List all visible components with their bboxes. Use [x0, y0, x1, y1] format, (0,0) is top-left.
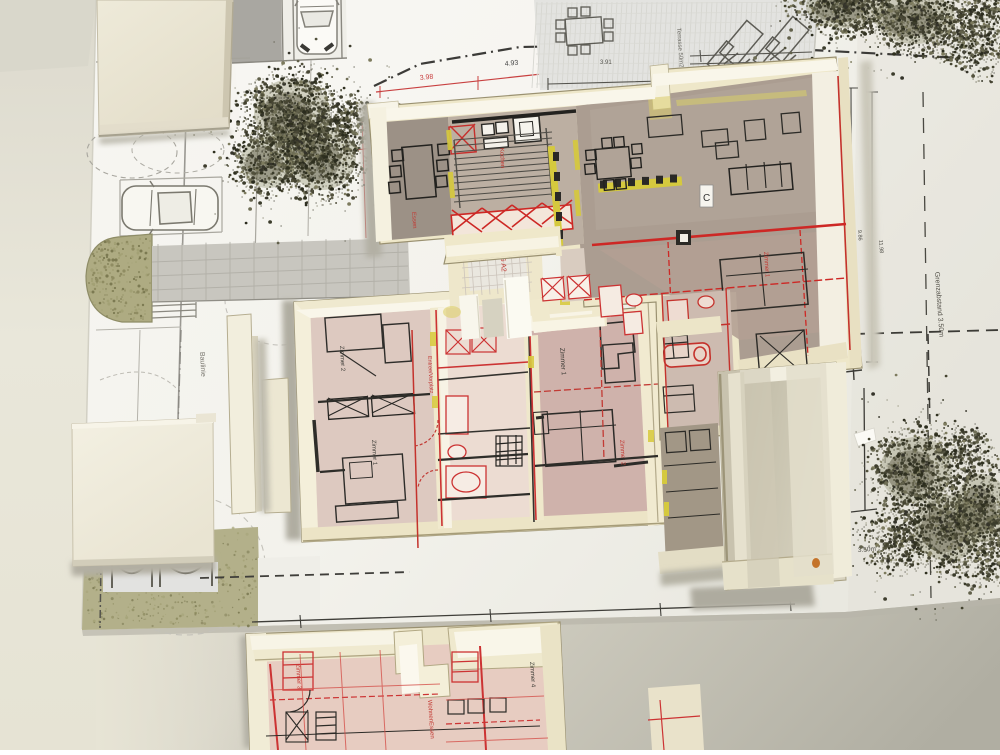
svg-text:Kochen: Kochen	[498, 148, 505, 169]
svg-text:3.98: 3.98	[419, 74, 433, 82]
svg-text:Essen: Essen	[410, 212, 417, 229]
svg-text:3.91: 3.91	[600, 60, 612, 66]
svg-text:C: C	[703, 193, 710, 204]
svg-text:11.98: 11.98	[877, 240, 884, 254]
svg-text:Baulinie: Baulinie	[198, 352, 206, 377]
svg-text:9.86: 9.86	[856, 230, 863, 241]
svg-text:4.93: 4.93	[504, 60, 518, 68]
